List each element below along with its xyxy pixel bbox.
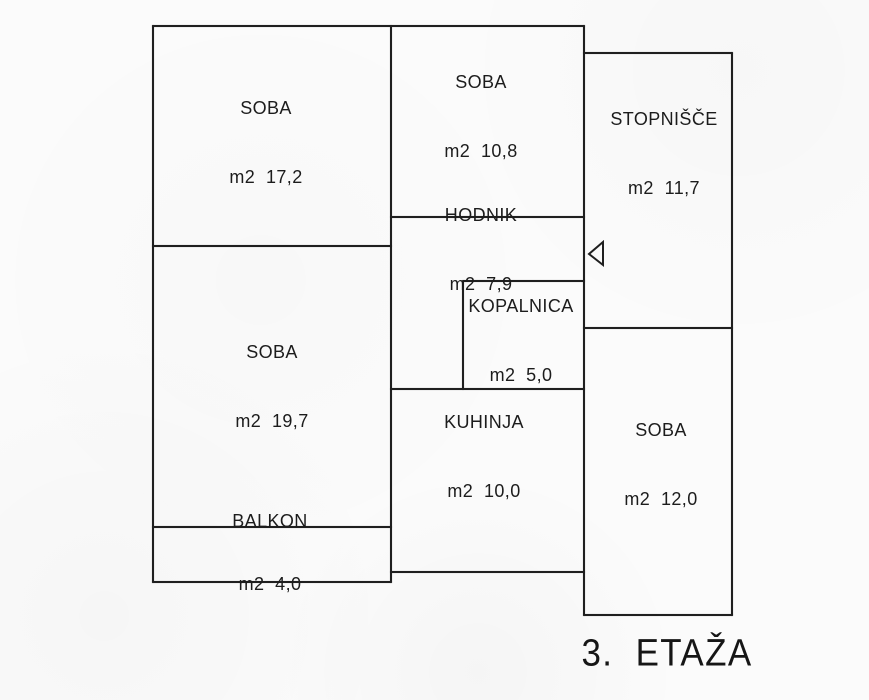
room-name: SOBA	[229, 97, 302, 120]
room-label-stopnisce: STOPNIŠČE m2 11,7	[610, 62, 717, 246]
wall-outer-right	[731, 52, 733, 616]
room-name: HODNIK	[445, 204, 517, 227]
room-area: m2 17,2	[229, 166, 302, 189]
wall-soba12-bottom	[583, 614, 733, 616]
wall-stopnisce-top	[583, 52, 733, 54]
wall-outer-left	[152, 25, 154, 583]
room-area: m2 4,0	[232, 574, 307, 595]
room-label-soba-17: SOBA m2 17,2	[229, 51, 302, 235]
room-area: m2 11,7	[610, 177, 717, 200]
room-area: m2 10,0	[444, 480, 524, 503]
wall-stopnisce-bottom	[583, 327, 733, 329]
wall-top-main	[152, 25, 585, 27]
wall-kuhinja-bottom	[390, 571, 585, 573]
room-name: STOPNIŠČE	[610, 108, 717, 131]
room-name: BALKON	[232, 511, 307, 532]
room-label-balkon: BALKON m2 4,0	[232, 469, 307, 637]
room-name: SOBA	[235, 341, 308, 364]
room-name: KOPALNICA	[468, 295, 573, 318]
floor-title: 3. ETAŽA	[581, 633, 752, 676]
room-label-soba-12: SOBA m2 12,0	[624, 373, 697, 557]
wall-soba-divider	[152, 245, 392, 247]
entrance-arrow-icon	[587, 240, 607, 268]
room-label-kuhinja: KUHINJA m2 10,0	[444, 365, 524, 549]
wall-middle-right	[583, 25, 585, 616]
room-label-soba-19: SOBA m2 19,7	[235, 295, 308, 479]
wall-middle-divider	[390, 25, 392, 583]
room-area: m2 12,0	[624, 488, 697, 511]
room-name: KUHINJA	[444, 411, 524, 434]
room-name: SOBA	[444, 71, 517, 94]
room-area: m2 19,7	[235, 410, 308, 433]
room-name: SOBA	[624, 419, 697, 442]
floorplan-scan: SOBA m2 17,2 SOBA m2 10,8 STOPNIŠČE m2 1…	[0, 0, 869, 700]
